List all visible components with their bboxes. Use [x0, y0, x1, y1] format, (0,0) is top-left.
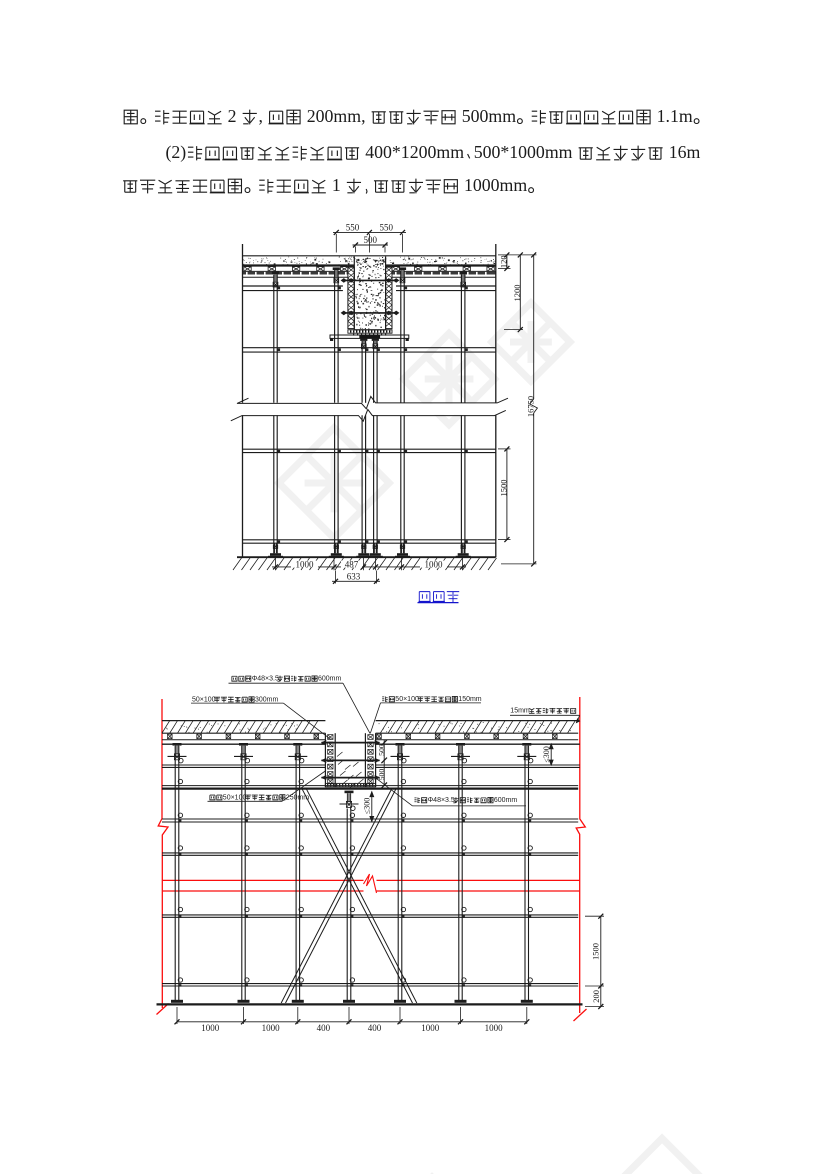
svg-text:633: 633 [347, 572, 361, 582]
svg-text:500: 500 [377, 769, 386, 781]
svg-text:200: 200 [591, 990, 601, 1003]
svg-text:120: 120 [499, 255, 509, 268]
svg-text:600mm: 600mm [494, 797, 518, 804]
svg-text:150mm: 150mm [458, 696, 482, 703]
svg-text:(2): (2) [166, 142, 187, 163]
svg-text:550: 550 [379, 223, 393, 233]
svg-text:500: 500 [363, 235, 377, 245]
svg-text:400: 400 [368, 1023, 382, 1033]
svg-text:50×100: 50×100 [223, 794, 247, 801]
svg-text:,: , [259, 106, 268, 126]
svg-text:600mm: 600mm [318, 676, 342, 683]
svg-text:1000: 1000 [485, 1023, 504, 1033]
svg-text:≤300: ≤300 [542, 746, 551, 762]
svg-text:50×100: 50×100 [192, 696, 216, 703]
svg-text:500mm: 500mm [457, 106, 516, 126]
svg-text:250mm: 250mm [286, 794, 310, 801]
svg-text:1000: 1000 [296, 559, 315, 569]
svg-text:1500: 1500 [499, 480, 509, 497]
svg-text:1500: 1500 [591, 943, 601, 960]
svg-text:1200: 1200 [512, 285, 522, 302]
svg-text:1000: 1000 [421, 1023, 440, 1033]
svg-text:≤300: ≤300 [362, 798, 371, 814]
svg-text:16750: 16750 [526, 396, 536, 417]
svg-text:15mm: 15mm [510, 708, 530, 715]
svg-text:500*1000mm: 500*1000mm [474, 142, 577, 162]
svg-text:50×100: 50×100 [395, 696, 419, 703]
svg-text:1000: 1000 [201, 1023, 220, 1033]
svg-text:Φ48×3.5: Φ48×3.5 [252, 676, 279, 683]
svg-text:16m: 16m [664, 142, 700, 162]
svg-text:1: 1 [327, 175, 345, 195]
svg-text:Φ48×3.5: Φ48×3.5 [428, 797, 455, 804]
svg-text:1000: 1000 [425, 559, 444, 569]
svg-text:1.1m: 1.1m [652, 106, 693, 126]
svg-text:1000mm: 1000mm [460, 175, 528, 195]
svg-text:550: 550 [346, 223, 360, 233]
svg-text:200mm,: 200mm, [302, 106, 370, 126]
svg-text:400*1200mm: 400*1200mm [361, 142, 464, 162]
svg-text:300mm: 300mm [255, 696, 279, 703]
svg-text:487: 487 [345, 559, 359, 569]
svg-text:1000: 1000 [262, 1023, 281, 1033]
svg-text:2: 2 [223, 106, 241, 126]
svg-text:500: 500 [377, 744, 386, 756]
svg-text:400: 400 [317, 1023, 331, 1033]
